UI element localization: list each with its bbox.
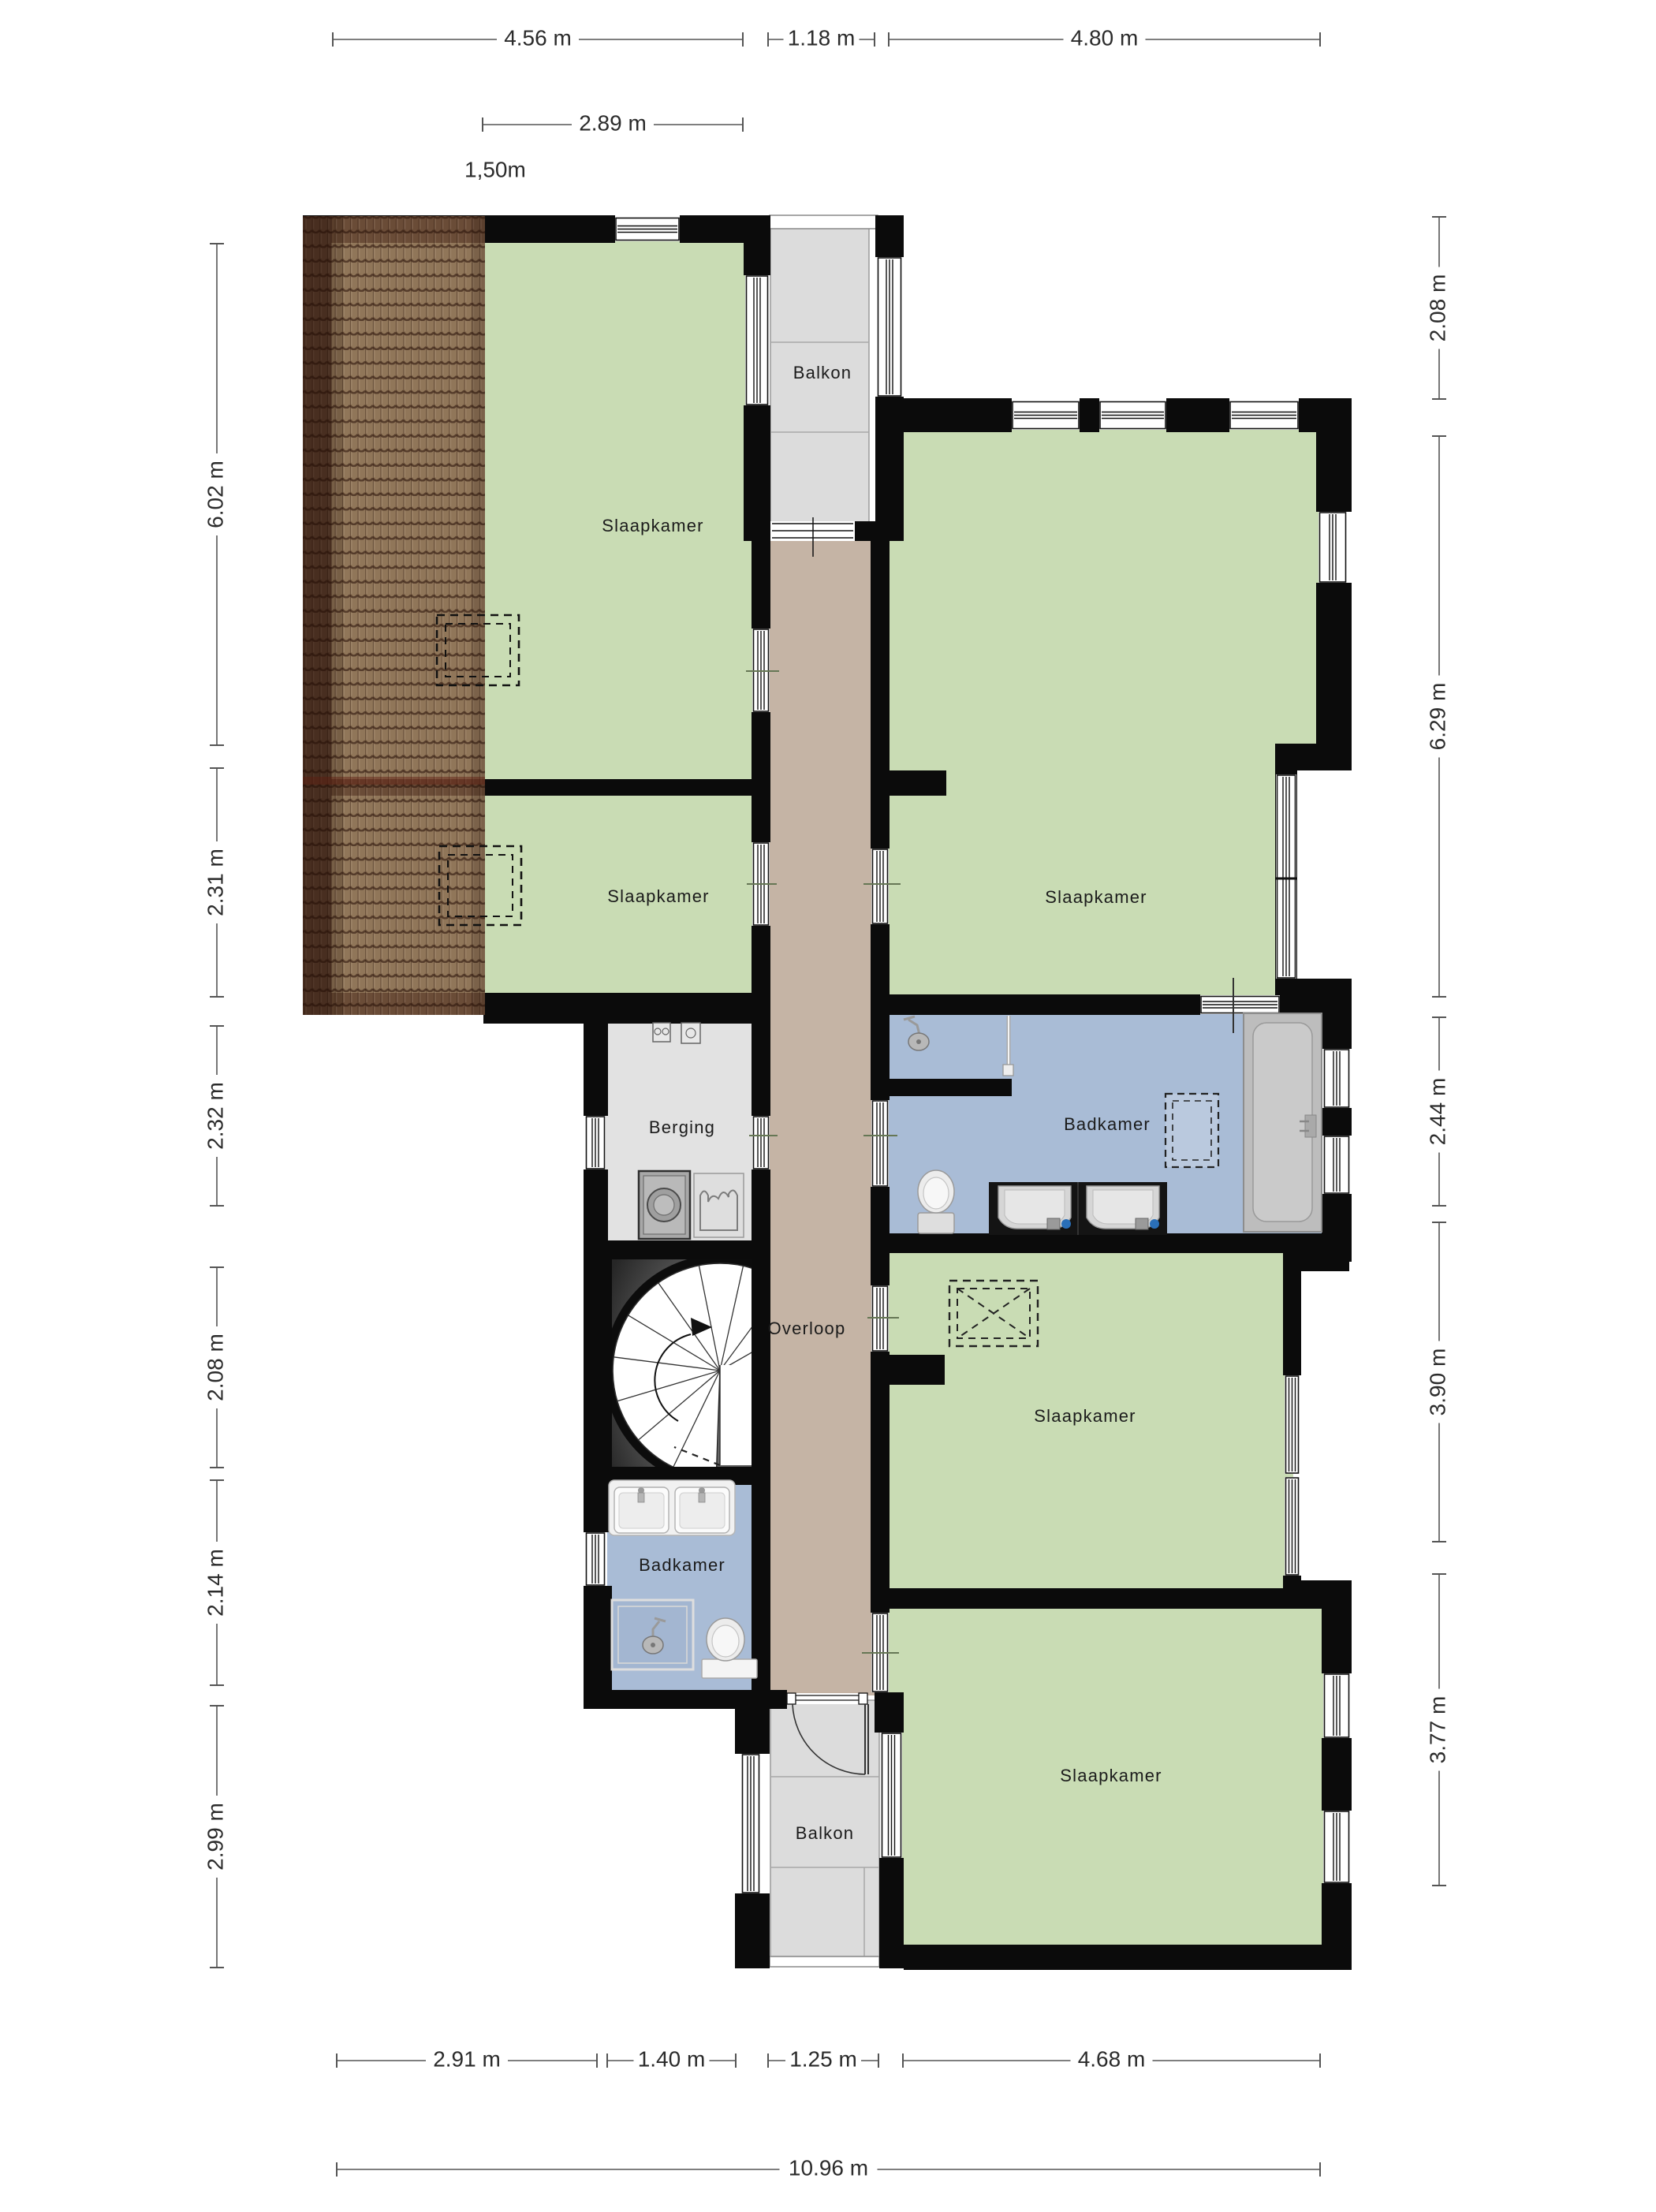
svg-text:1,50m: 1,50m bbox=[464, 157, 526, 181]
svg-text:3.90 m: 3.90 m bbox=[1425, 1348, 1449, 1416]
svg-text:2.99 m: 2.99 m bbox=[203, 1803, 227, 1871]
svg-text:Overloop: Overloop bbox=[768, 1319, 846, 1338]
svg-text:2.32 m: 2.32 m bbox=[203, 1082, 227, 1150]
svg-text:2.31 m: 2.31 m bbox=[203, 849, 227, 916]
svg-text:Badkamer: Badkamer bbox=[639, 1555, 725, 1575]
svg-text:Slaapkamer: Slaapkamer bbox=[1034, 1406, 1136, 1426]
svg-text:Slaapkamer: Slaapkamer bbox=[602, 516, 703, 535]
svg-text:1.40 m: 1.40 m bbox=[638, 2046, 706, 2071]
svg-text:2.14 m: 2.14 m bbox=[203, 1549, 227, 1617]
svg-text:3.77 m: 3.77 m bbox=[1425, 1696, 1449, 1764]
svg-text:6.02 m: 6.02 m bbox=[203, 461, 227, 528]
svg-text:2.91 m: 2.91 m bbox=[433, 2046, 501, 2071]
svg-text:4.80 m: 4.80 m bbox=[1071, 25, 1139, 50]
svg-text:Slaapkamer: Slaapkamer bbox=[1060, 1766, 1162, 1785]
svg-text:Slaapkamer: Slaapkamer bbox=[1045, 887, 1147, 907]
svg-text:Berging: Berging bbox=[649, 1117, 715, 1137]
svg-text:6.29 m: 6.29 m bbox=[1425, 683, 1449, 751]
svg-text:10.96 m: 10.96 m bbox=[789, 2155, 868, 2180]
svg-text:Balkon: Balkon bbox=[796, 1823, 854, 1843]
svg-text:2.44 m: 2.44 m bbox=[1425, 1078, 1449, 1146]
svg-text:1.18 m: 1.18 m bbox=[788, 25, 856, 50]
svg-text:2.08 m: 2.08 m bbox=[1425, 274, 1449, 342]
svg-text:Slaapkamer: Slaapkamer bbox=[607, 886, 709, 906]
svg-text:Balkon: Balkon bbox=[793, 363, 852, 382]
svg-text:4.56 m: 4.56 m bbox=[504, 25, 572, 50]
svg-text:4.68 m: 4.68 m bbox=[1078, 2046, 1146, 2071]
svg-text:2.08 m: 2.08 m bbox=[203, 1334, 227, 1401]
svg-text:1.25 m: 1.25 m bbox=[789, 2046, 857, 2071]
svg-text:2.89 m: 2.89 m bbox=[579, 110, 647, 135]
svg-text:Badkamer: Badkamer bbox=[1064, 1114, 1151, 1134]
